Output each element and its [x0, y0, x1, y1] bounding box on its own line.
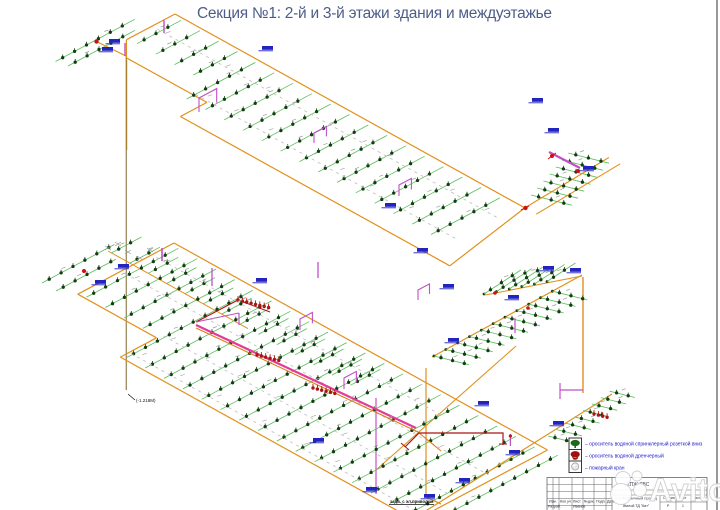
svg-text:Изм.: Изм.	[549, 500, 557, 504]
svg-text:Лист: Лист	[573, 500, 581, 504]
svg-text:Секция №1: 2-й и 3-й этажи зда: Секция №1: 2-й и 3-й этажи здания и межд…	[197, 5, 552, 22]
svg-text:задв. с эл.приводом: задв. с эл.приводом	[390, 499, 434, 504]
svg-text:Разраб.: Разраб.	[548, 505, 561, 509]
svg-text:Жилой ТД "Кит": Жилой ТД "Кит"	[623, 504, 650, 508]
svg-text:Иванов: Иванов	[573, 505, 585, 509]
svg-text:№док.: №док.	[584, 500, 595, 504]
svg-text:– пожарный кран: – пожарный кран	[585, 465, 625, 472]
svg-text:(-1.218M): (-1.218M)	[136, 398, 156, 403]
svg-text:Avito: Avito	[649, 472, 720, 508]
svg-text:– ороситель водяной спринклерн: – ороситель водяной спринклерный розетко…	[585, 441, 703, 448]
svg-text:Подп.: Подп.	[596, 500, 606, 504]
svg-text:– ороситель водяной дренчерный: – ороситель водяной дренчерный	[585, 453, 664, 460]
svg-text:Кол.уч: Кол.уч	[560, 500, 571, 504]
